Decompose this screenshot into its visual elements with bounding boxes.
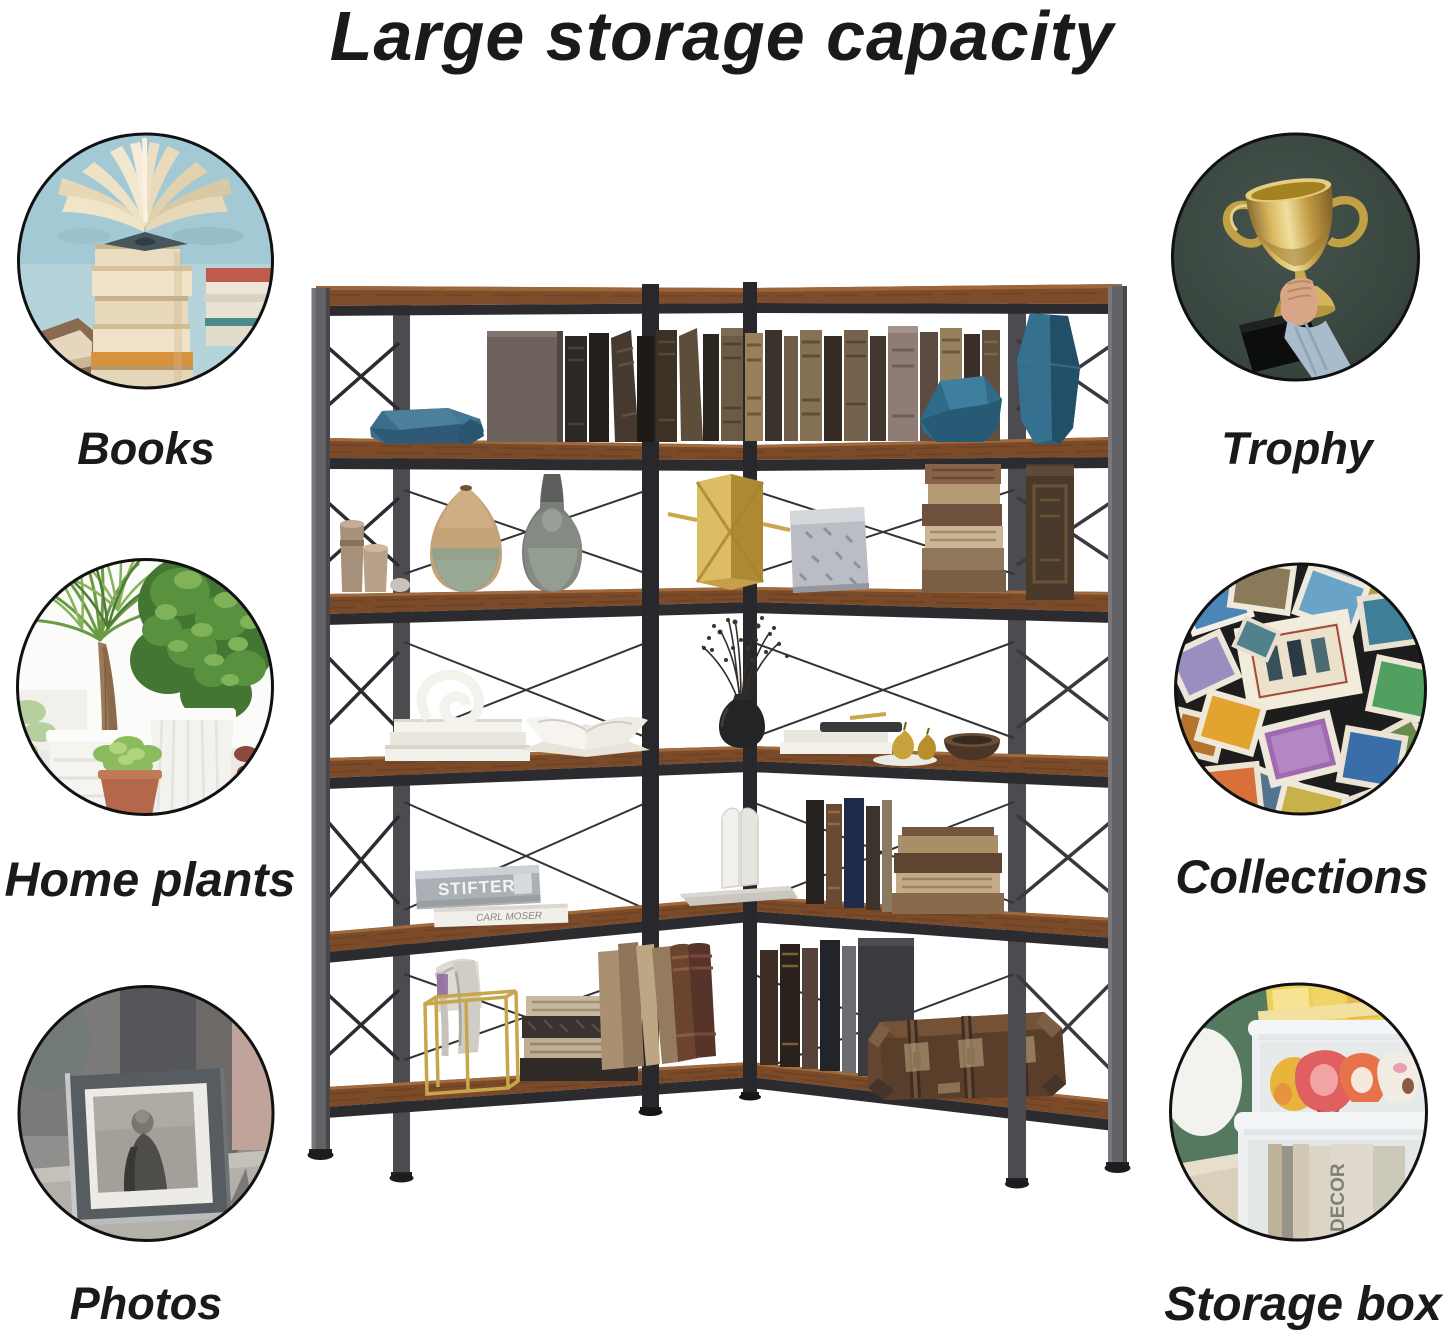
svg-text:Collections: Collections: [1175, 850, 1428, 903]
svg-text:DECOR: DECOR: [1328, 1163, 1349, 1232]
svg-text:STIFTER: STIFTER: [437, 876, 516, 899]
svg-text:Storage box: Storage box: [1164, 1278, 1444, 1330]
svg-text:CARL MOSER: CARL MOSER: [476, 911, 542, 924]
svg-text:Large storage capacity: Large storage capacity: [330, 0, 1117, 75]
svg-text:Books: Books: [77, 423, 215, 474]
svg-text:Trophy: Trophy: [1221, 423, 1375, 474]
svg-text:Home plants: Home plants: [4, 853, 295, 907]
svg-text:Photos: Photos: [70, 1278, 223, 1329]
